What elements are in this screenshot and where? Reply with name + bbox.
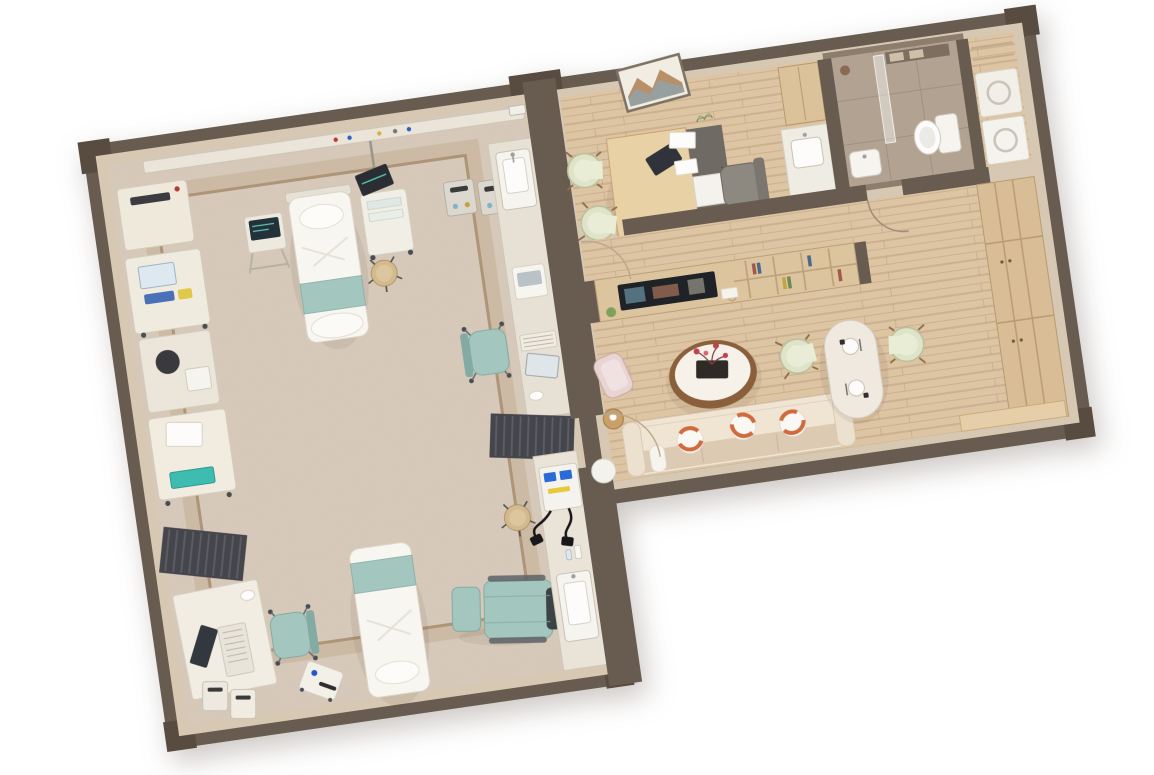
clinic-suite <box>77 1 1124 753</box>
washbasin <box>849 148 882 178</box>
appliance-1 <box>975 68 1023 118</box>
bathroom <box>831 40 974 187</box>
treatment-room <box>100 104 612 738</box>
floor-plan-stage <box>0 0 1154 775</box>
slatted-screen-1 <box>159 527 247 581</box>
waste-bin <box>443 179 478 217</box>
floor-plan-render <box>0 0 1154 775</box>
bath-wall-stub <box>850 185 868 203</box>
book-open <box>721 287 738 299</box>
appliance-2 <box>982 115 1030 165</box>
